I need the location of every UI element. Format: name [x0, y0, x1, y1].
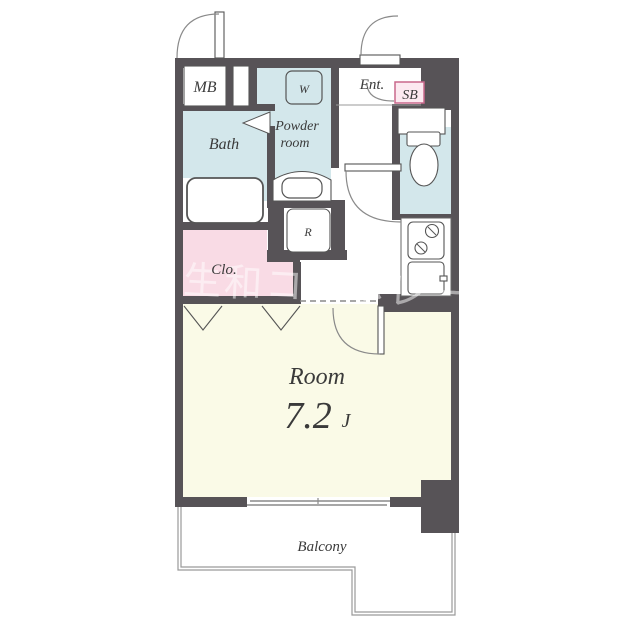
entrance-door-arc — [361, 16, 398, 55]
powder-room-label-2: room — [280, 136, 309, 151]
closet-label: Clo. — [211, 262, 236, 278]
entrance-label: Ent. — [359, 77, 385, 93]
wall-bottom-left — [175, 497, 247, 507]
shoe-box-label: SB — [402, 88, 418, 103]
main-room-size-unit: J — [342, 410, 352, 432]
wall-powder-hall — [331, 58, 339, 168]
mb-door-arc — [177, 14, 219, 58]
main-room-label: Room — [288, 364, 345, 390]
bath-label: Bath — [209, 136, 239, 153]
wall-left — [175, 58, 183, 507]
wall-right-of-fridge — [331, 205, 345, 255]
wall-mb-divider — [226, 66, 233, 106]
wall-top-right-block — [421, 58, 459, 105]
washer-label: W — [299, 82, 310, 96]
floor-plan-drawing: 生和コーポレーション MB W Powder room Bath Ent. SB… — [0, 0, 640, 640]
refrigerator-label: R — [303, 225, 312, 239]
balcony-outline-inner — [181, 507, 452, 612]
pipe-space — [233, 66, 249, 106]
wall-right — [451, 58, 459, 480]
wall-bottom-right-block — [421, 480, 459, 533]
room-door-leaf — [378, 306, 384, 354]
wall-closet-notch — [267, 252, 300, 262]
main-room-size: 7.2 — [284, 395, 332, 437]
powder-room-label-1: Powder — [274, 119, 319, 134]
mb-door-leaf — [215, 12, 224, 58]
entrance-door-leaf — [360, 55, 400, 65]
wall-bottom-right — [390, 497, 421, 507]
meter-box-label: MB — [192, 79, 216, 96]
toilet-bowl — [410, 144, 438, 186]
floor-plan-canvas: 生和コーポレーション MB W Powder room Bath Ent. SB… — [0, 0, 640, 640]
hall-door-leaf — [345, 164, 401, 171]
balcony-label: Balcony — [297, 539, 346, 555]
bathtub — [187, 178, 263, 223]
balcony-outline-outer — [178, 507, 455, 615]
toilet-cabinet — [398, 108, 445, 134]
wall-comp-divider — [249, 66, 257, 106]
wall-left-of-fridge — [268, 206, 284, 252]
